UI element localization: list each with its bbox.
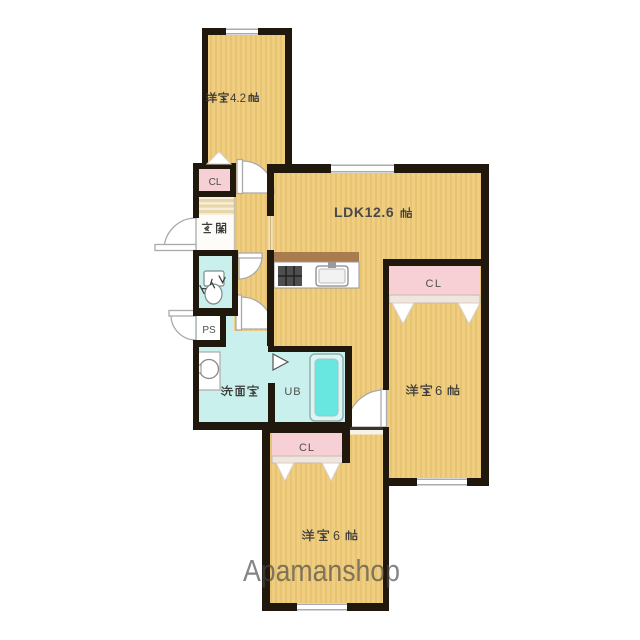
svg-text:6: 6	[333, 529, 340, 543]
svg-text:LDK12.6: LDK12.6	[334, 204, 394, 220]
svg-text:CL: CL	[209, 177, 222, 188]
svg-text:CL: CL	[299, 442, 315, 454]
svg-text:PS: PS	[202, 325, 216, 336]
svg-text:6: 6	[435, 383, 442, 398]
svg-text:Apamanshop: Apamanshop	[243, 554, 400, 588]
svg-text:4.2: 4.2	[230, 93, 246, 105]
svg-text:UB: UB	[284, 386, 301, 398]
svg-text:CL: CL	[425, 278, 442, 290]
